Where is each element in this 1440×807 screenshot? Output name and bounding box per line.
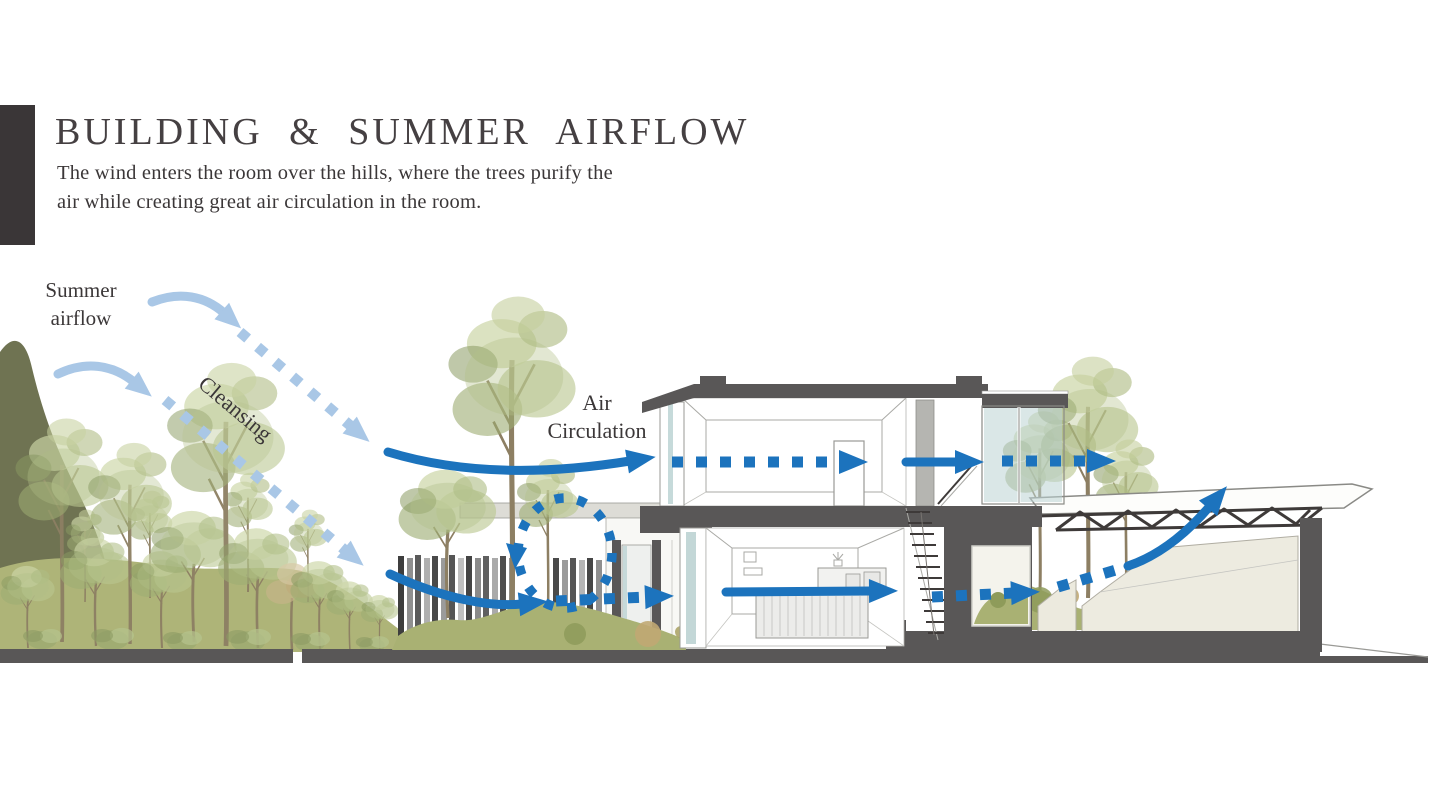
right-support-wall — [1300, 518, 1322, 652]
lower-floor-solid — [726, 591, 872, 592]
summer-airflow-label-line2: airflow — [51, 306, 112, 330]
summer-airflow-label-line1: Summer — [45, 278, 116, 302]
airflow-section-diagram: Summer airflow Cleansing Air Circulation — [0, 0, 1440, 807]
air-circulation-label-line1: Air — [582, 390, 612, 415]
main-building-section — [640, 376, 1068, 648]
summer-airflow-curve-1 — [152, 296, 224, 313]
kitchen-island — [756, 594, 868, 638]
staircase — [906, 508, 950, 640]
summer-airflow-curve-2 — [58, 366, 134, 382]
slide: BUILDING & SUMMER AIRFLOW The wind enter… — [0, 0, 1440, 807]
air-circulation-label-line2: Circulation — [548, 418, 647, 443]
